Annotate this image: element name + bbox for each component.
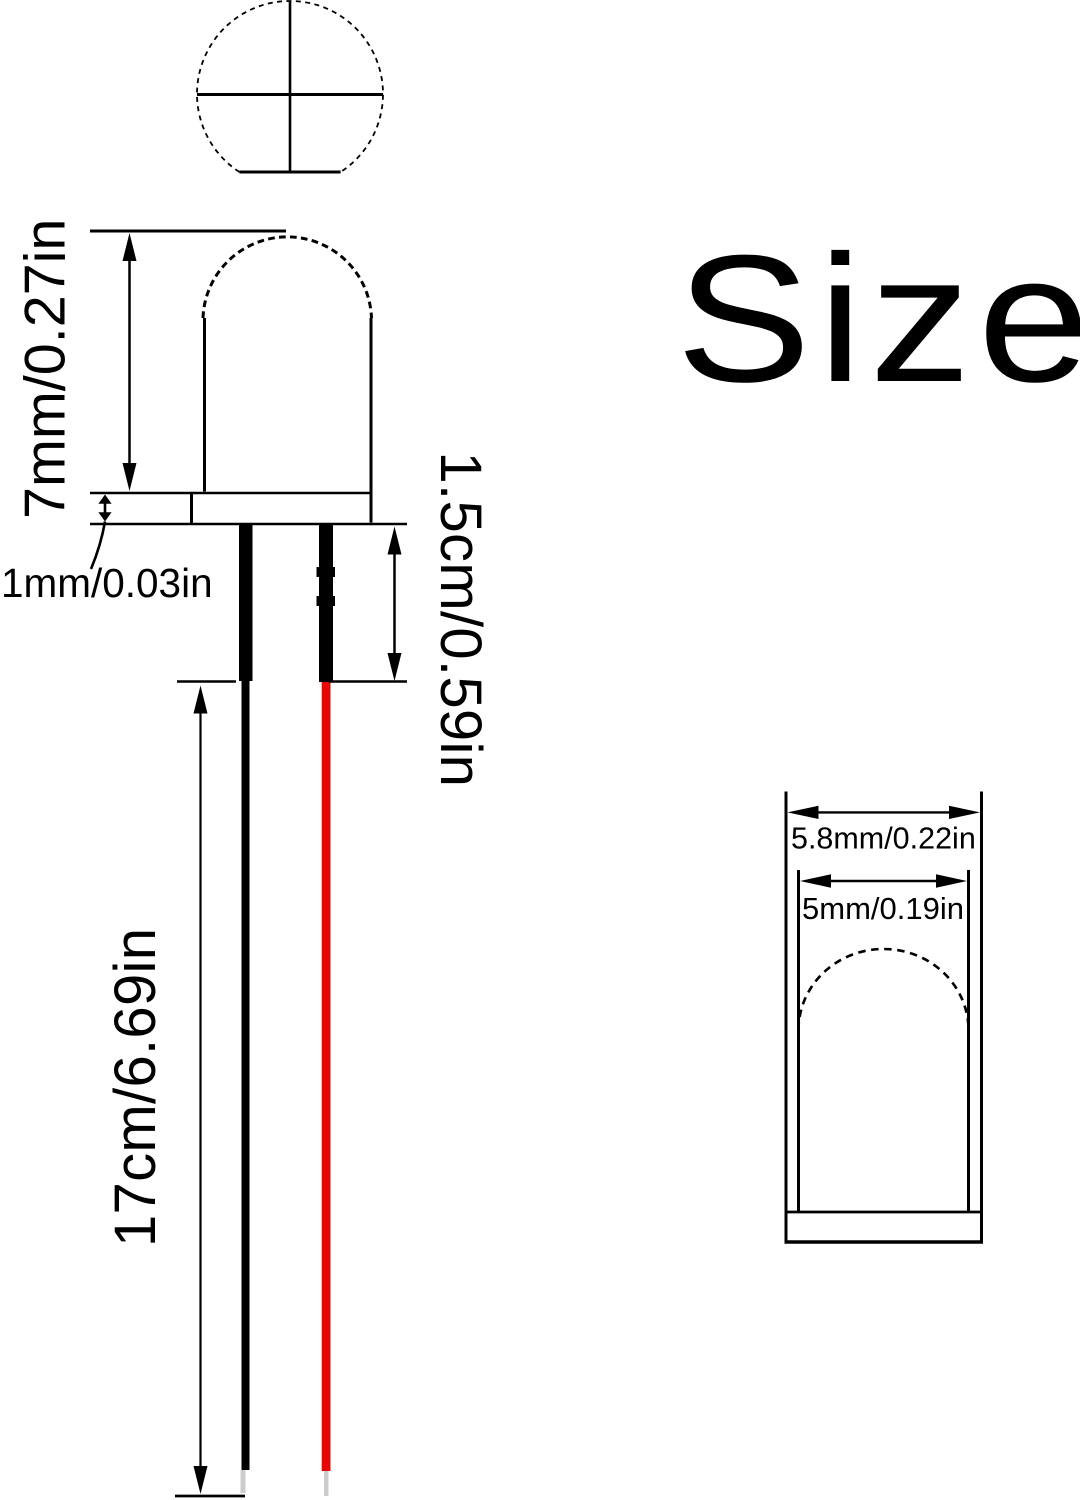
svg-text:Size: Size (676, 217, 1080, 420)
svg-text:17cm/6.69in: 17cm/6.69in (103, 928, 168, 1247)
svg-text:7mm/0.27in: 7mm/0.27in (14, 219, 78, 519)
svg-text:5mm/0.19in: 5mm/0.19in (802, 891, 964, 926)
svg-text:1mm/0.03in: 1mm/0.03in (1, 560, 213, 606)
svg-text:5.8mm/0.22in: 5.8mm/0.22in (791, 822, 976, 856)
svg-text:1.5cm/0.59in: 1.5cm/0.59in (428, 452, 493, 788)
